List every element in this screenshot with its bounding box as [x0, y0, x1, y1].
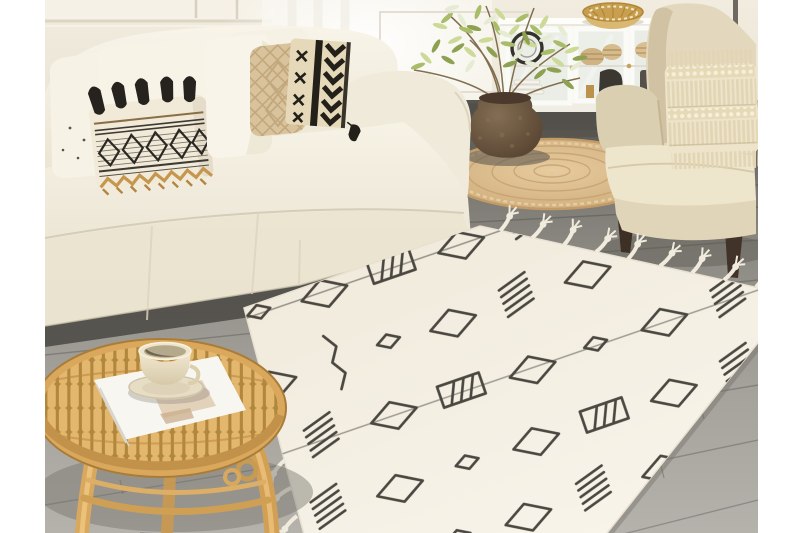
fringe-bottom: [671, 150, 758, 169]
fringe-row-1: [666, 78, 757, 107]
fringe-top: [668, 49, 753, 68]
photo-frame: [0, 0, 800, 533]
plate-stack: [510, 80, 544, 94]
brass-object: [586, 85, 594, 98]
pot-opening: [479, 92, 531, 104]
fringe-cushion: [664, 48, 760, 169]
door-knob-2: [627, 64, 632, 69]
living-room-photo: [0, 0, 800, 533]
